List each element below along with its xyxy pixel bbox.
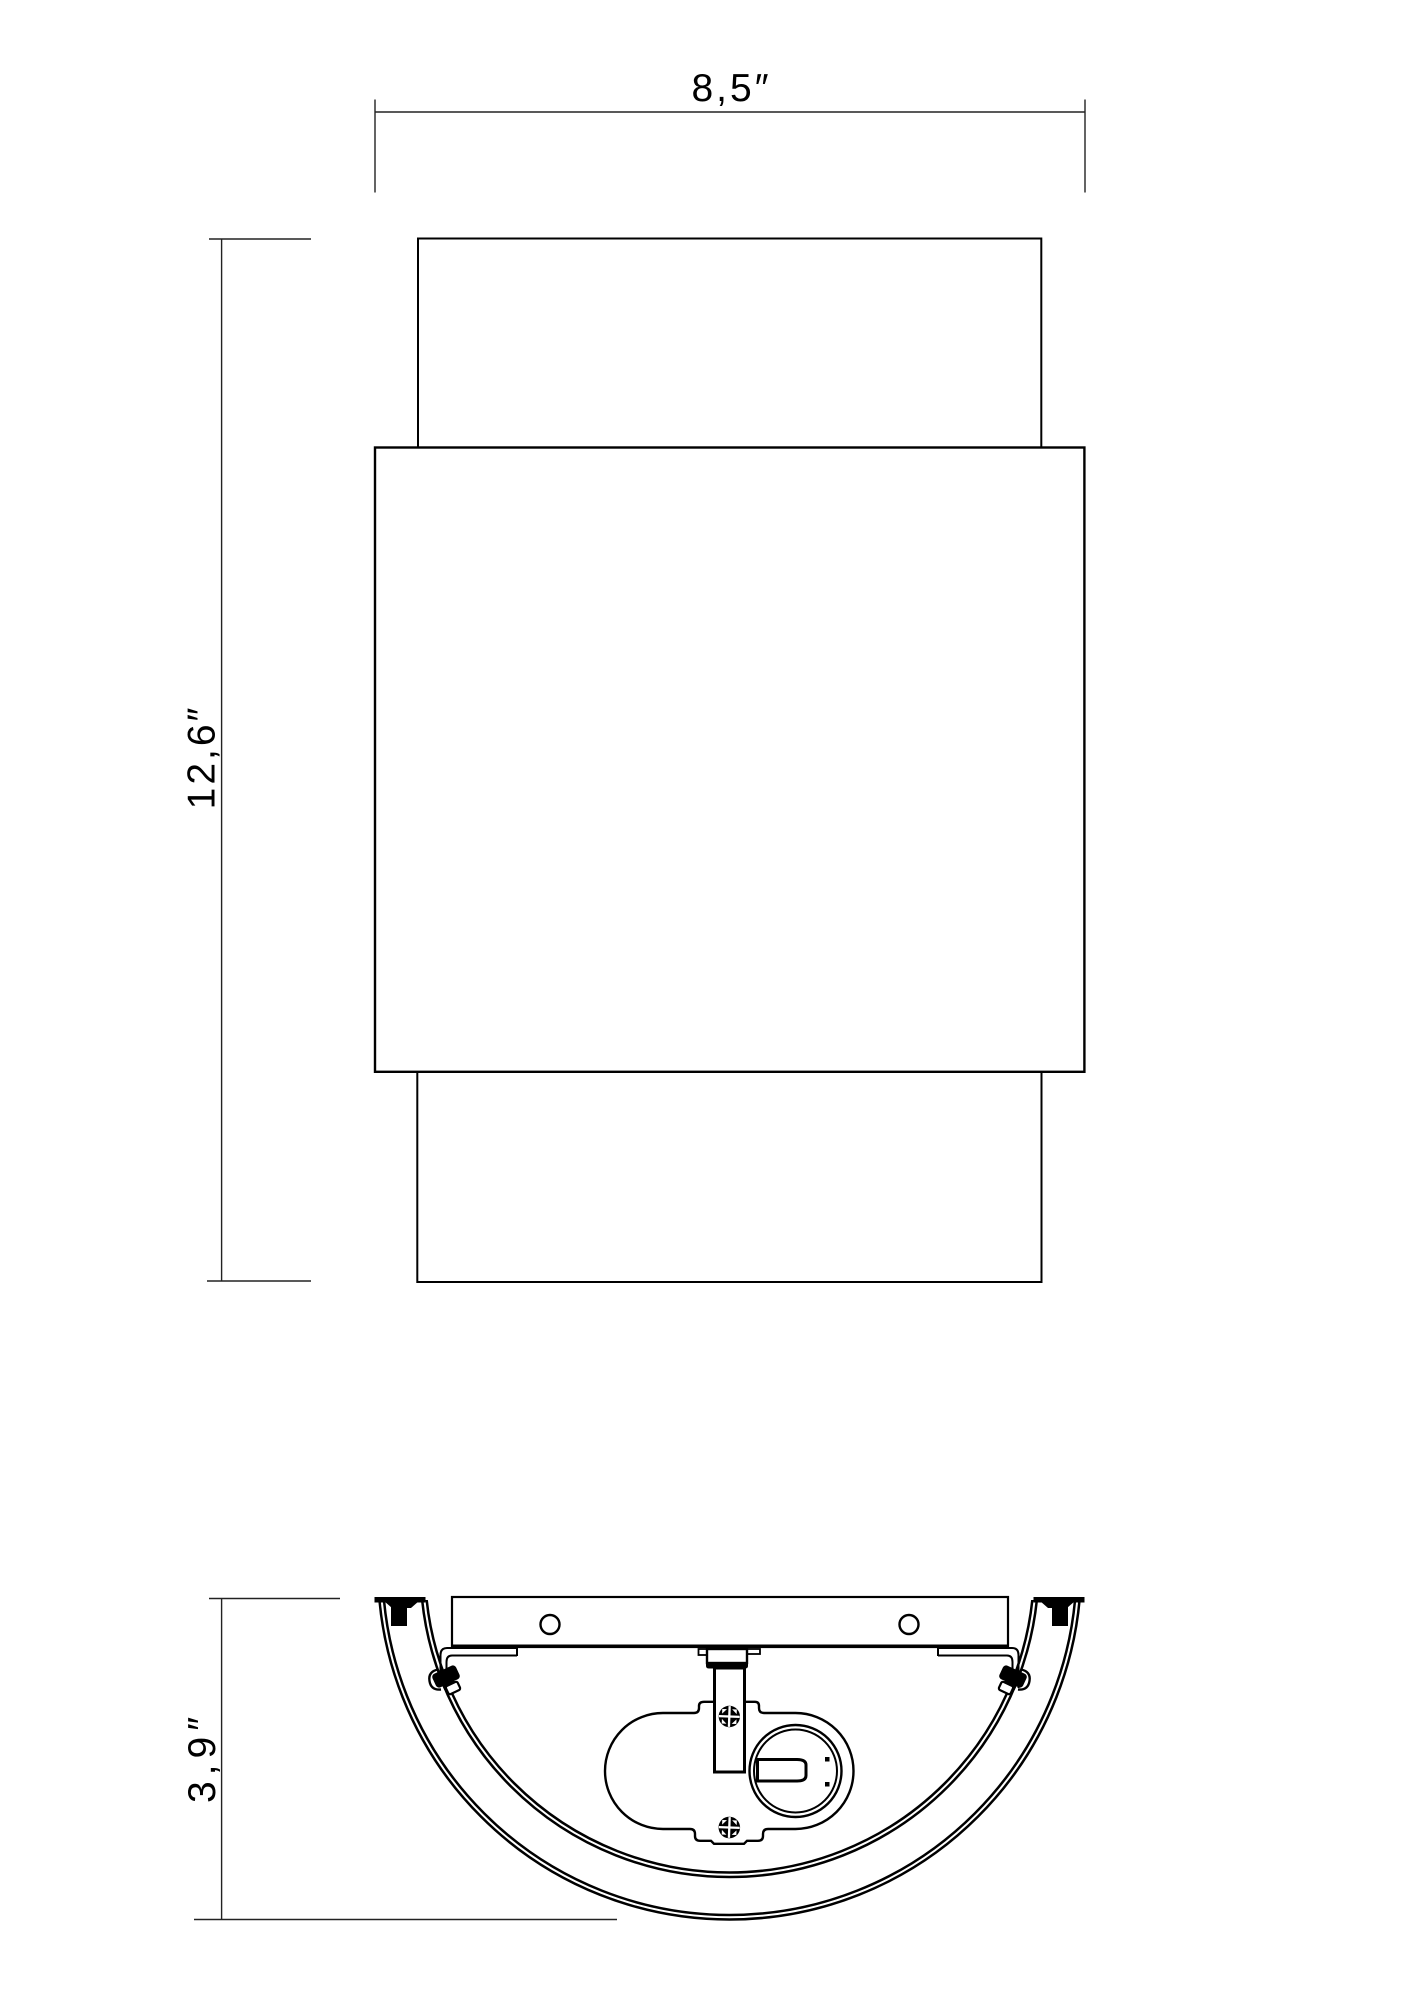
svg-text:12,6″: 12,6″ [181, 705, 224, 810]
svg-text:8,5″: 8,5″ [691, 67, 771, 110]
svg-text:3,9″: 3,9″ [181, 1711, 224, 1803]
